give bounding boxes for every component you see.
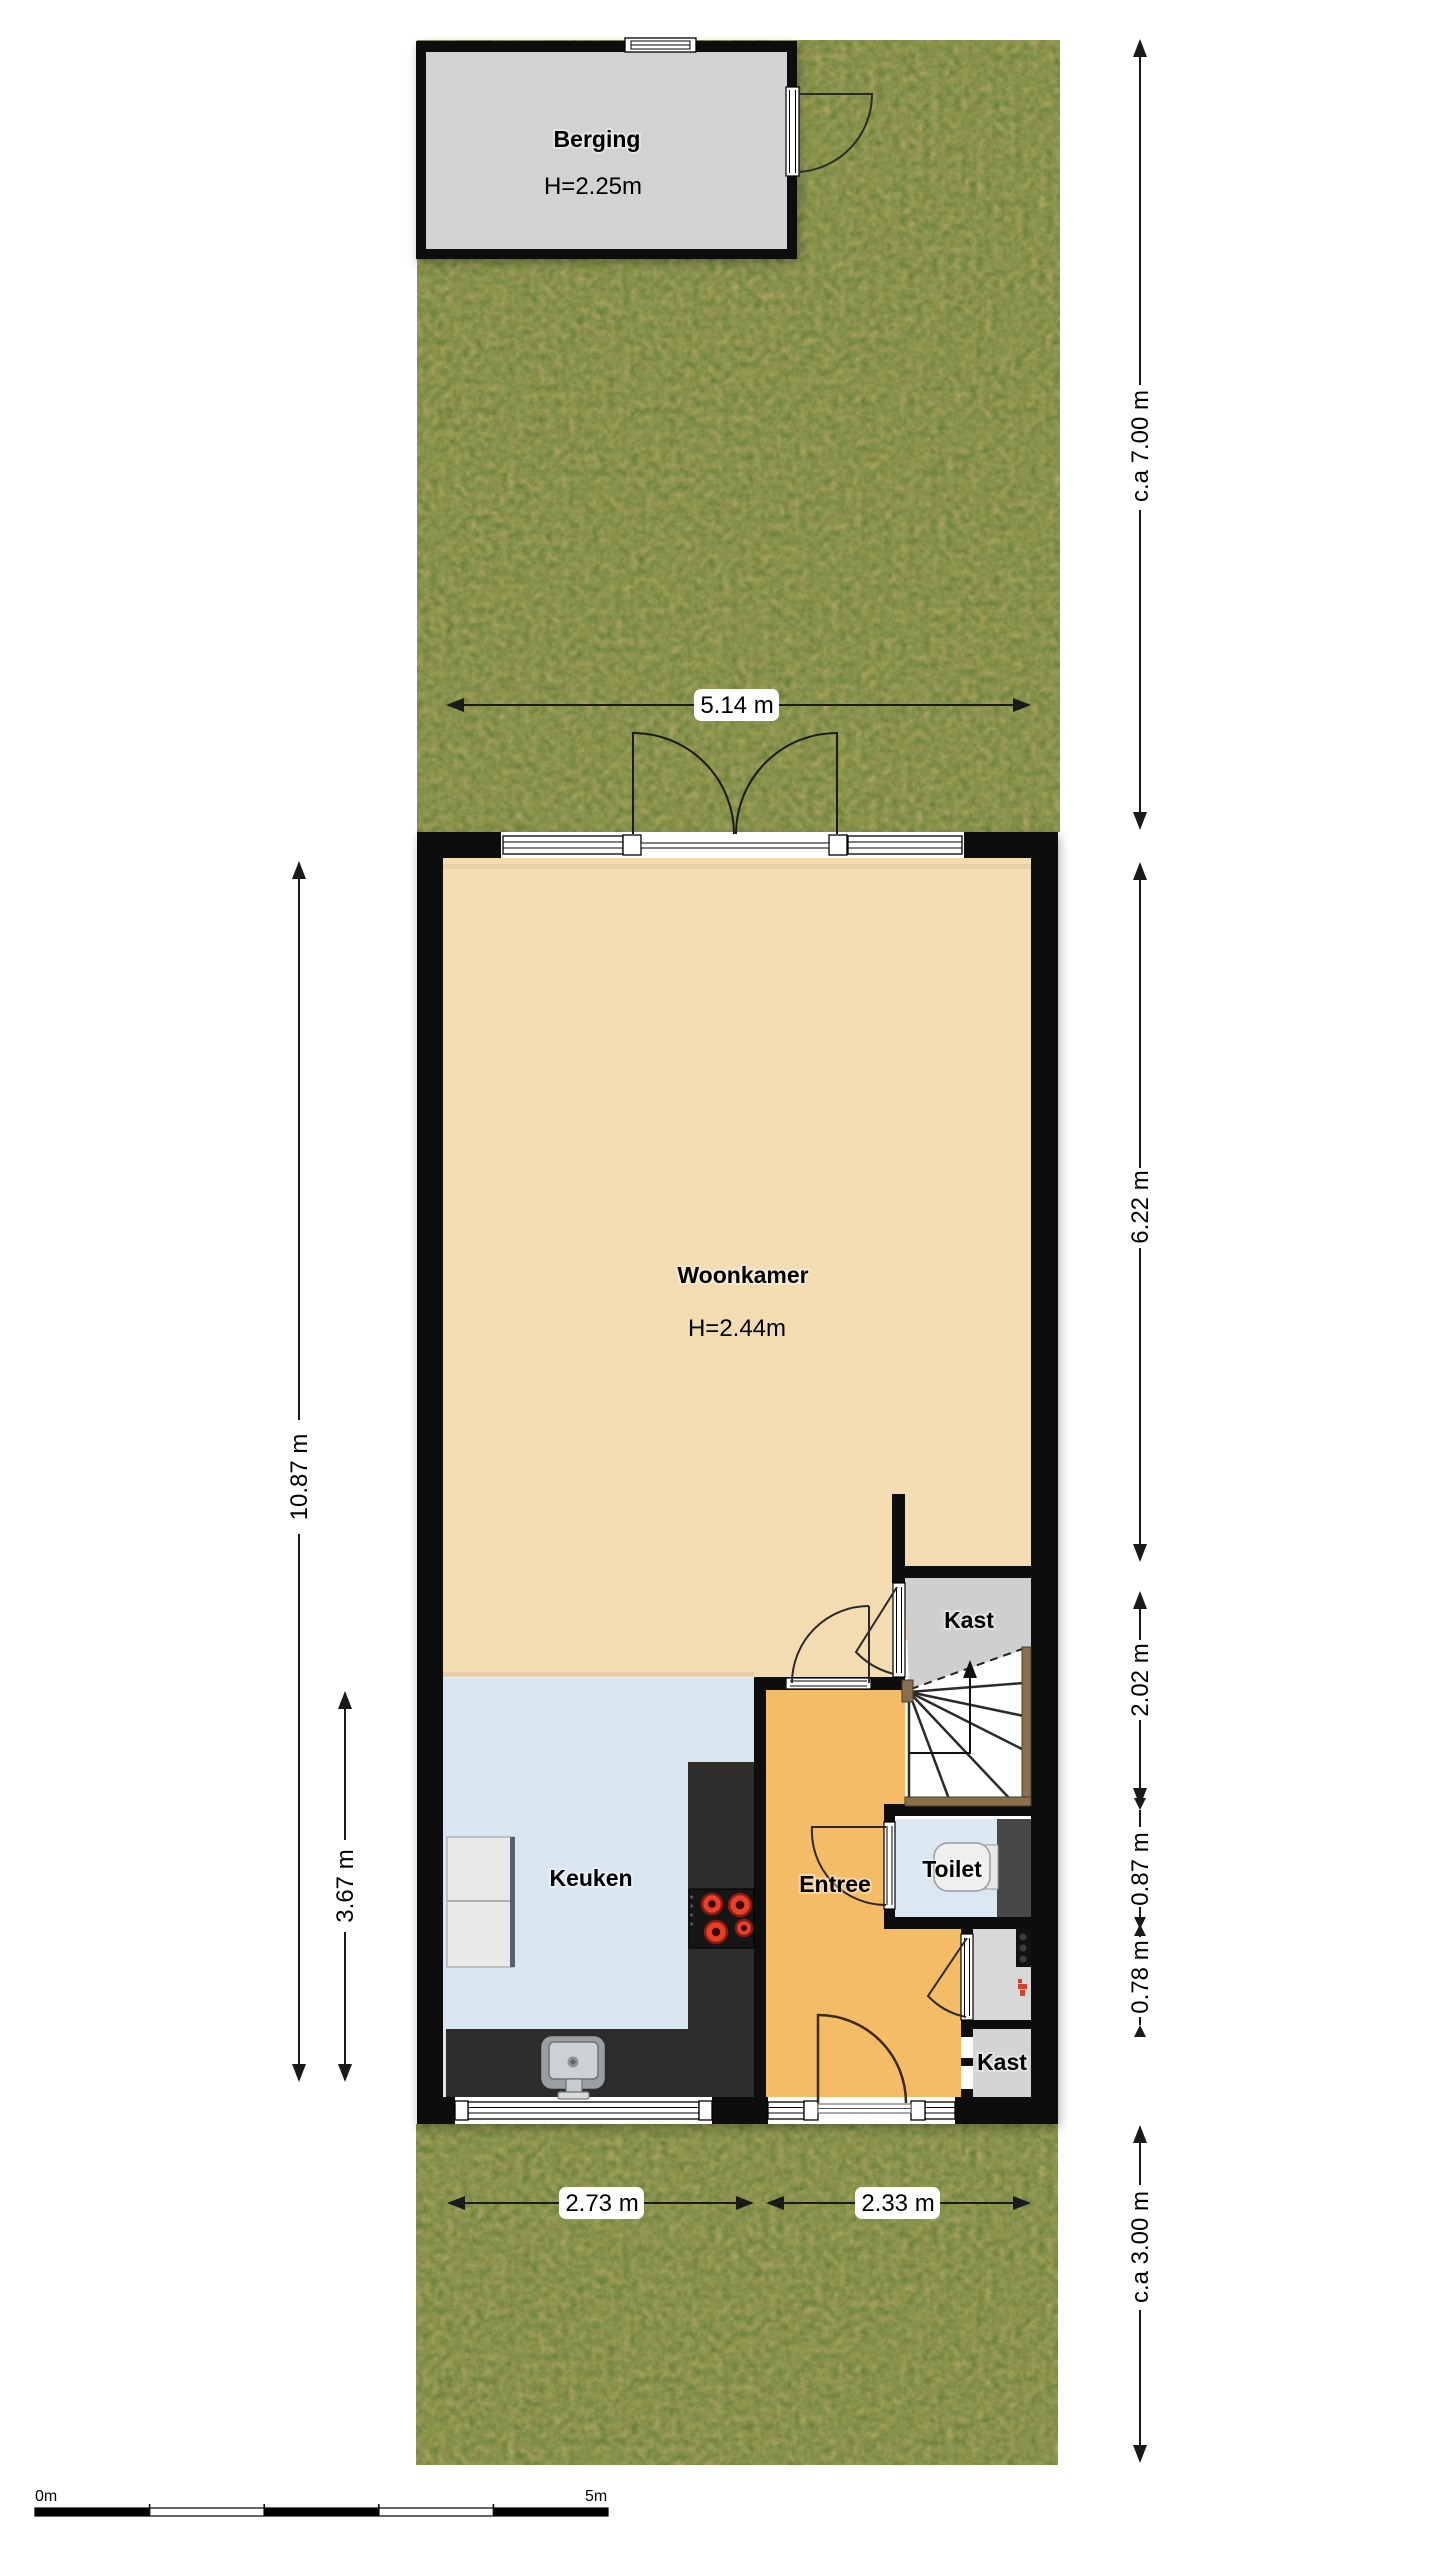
svg-text:2.02 m: 2.02 m bbox=[1127, 1643, 1154, 1716]
svg-text:Toilet: Toilet bbox=[922, 1856, 982, 1882]
svg-text:3.67 m: 3.67 m bbox=[332, 1849, 359, 1922]
svg-text:0.78 m: 0.78 m bbox=[1127, 1940, 1154, 2013]
svg-text:5m: 5m bbox=[585, 2488, 607, 2505]
svg-text:H=2.25m: H=2.25m bbox=[544, 173, 642, 200]
svg-text:0.87 m: 0.87 m bbox=[1127, 1832, 1154, 1905]
svg-text:c.a 7.00 m: c.a 7.00 m bbox=[1127, 390, 1154, 502]
svg-text:Berging: Berging bbox=[554, 126, 641, 152]
svg-text:Kast: Kast bbox=[977, 2049, 1027, 2075]
svg-text:Entree: Entree bbox=[799, 1871, 871, 1897]
svg-text:H=2.44m: H=2.44m bbox=[688, 1315, 786, 1342]
svg-text:6.22 m: 6.22 m bbox=[1127, 1170, 1154, 1243]
svg-text:Keuken: Keuken bbox=[549, 1865, 632, 1891]
svg-text:10.87 m: 10.87 m bbox=[286, 1434, 313, 1521]
svg-text:0m: 0m bbox=[35, 2488, 57, 2505]
svg-text:Woonkamer: Woonkamer bbox=[677, 1262, 808, 1288]
svg-text:2.73 m: 2.73 m bbox=[565, 2190, 638, 2217]
svg-text:Kast: Kast bbox=[944, 1607, 994, 1633]
svg-text:5.14 m: 5.14 m bbox=[700, 692, 773, 719]
svg-text:c.a 3.00 m: c.a 3.00 m bbox=[1127, 2191, 1154, 2303]
svg-text:2.33 m: 2.33 m bbox=[861, 2190, 934, 2217]
